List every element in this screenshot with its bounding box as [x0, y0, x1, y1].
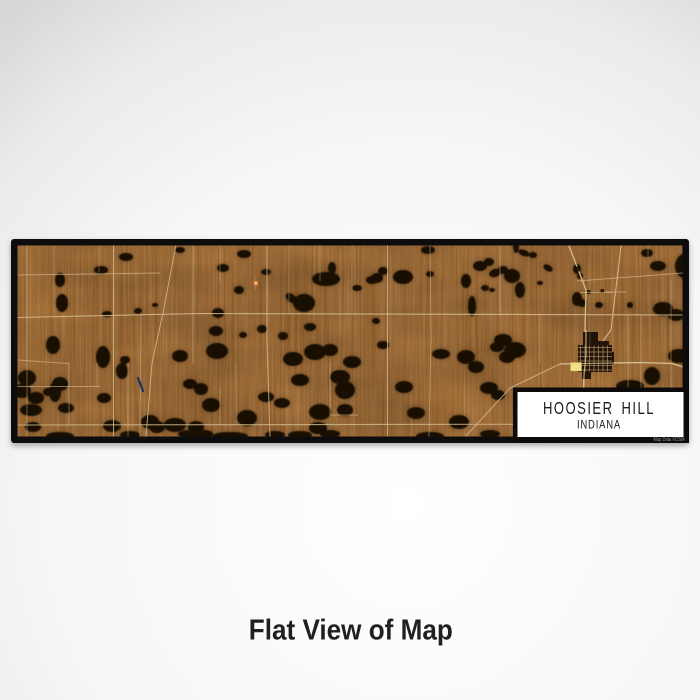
- svg-text:Flat View of Map: Flat View of Map: [249, 615, 453, 647]
- svg-text:Map Data ©OSM: Map Data ©OSM: [654, 436, 685, 443]
- svg-text:HOOSIER HILL: HOOSIER HILL: [543, 398, 655, 418]
- svg-text:INDIANA: INDIANA: [577, 418, 621, 432]
